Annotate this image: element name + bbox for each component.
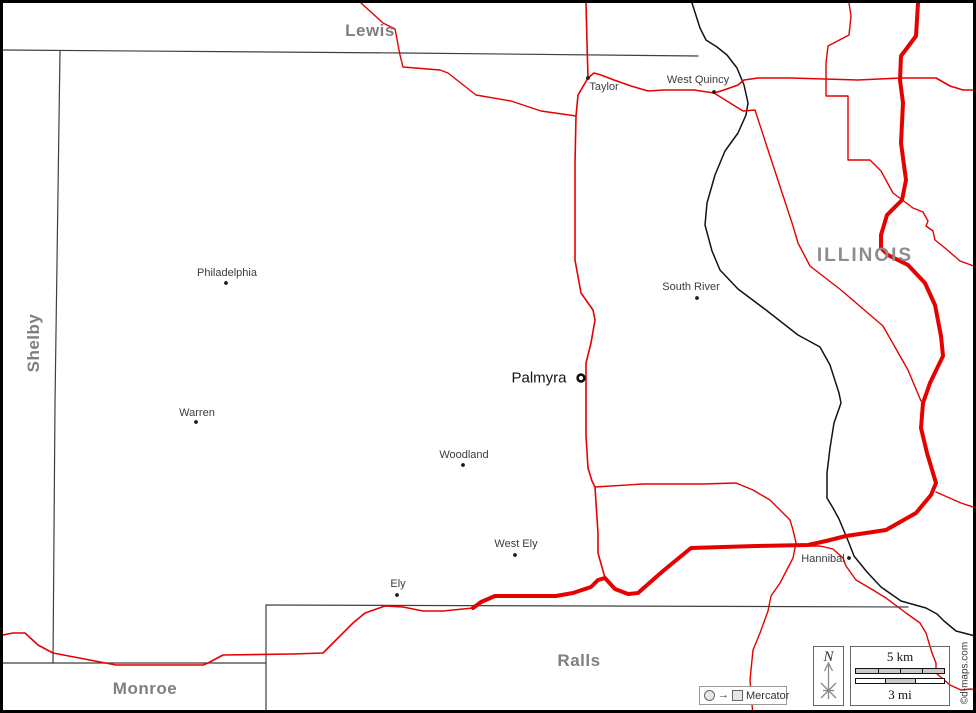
- road-palmyra-east-loop: [595, 483, 796, 710]
- projection-name: Mercator: [746, 690, 789, 702]
- scale-km-bar: [855, 668, 945, 674]
- ralls-marion-line: [266, 605, 908, 607]
- town-dot: [513, 553, 517, 557]
- arrow-right-icon: →: [718, 690, 729, 701]
- road-west-along-ralls: [3, 606, 473, 665]
- road-east-short: [936, 492, 973, 509]
- road-northwest: [361, 3, 576, 116]
- road-taylor-west-quincy-east: [588, 73, 973, 93]
- town-dot: [224, 281, 228, 285]
- shelby-marion-line: [53, 51, 60, 663]
- scale-bar-box: 5 km 3 mi: [850, 646, 950, 706]
- north-label: N: [814, 649, 843, 666]
- mississippi-river-state-line: [692, 3, 973, 637]
- road-taylor-palmyra: [575, 3, 605, 578]
- projection-legend: → Mercator: [699, 686, 787, 705]
- town-dot: [461, 463, 465, 467]
- town-dot: [712, 90, 716, 94]
- projected-square-icon: [732, 690, 743, 701]
- county-seat-marker: [578, 375, 585, 382]
- town-dot: [586, 76, 590, 80]
- globe-circle-icon: [704, 690, 715, 701]
- scale-km-label: 5 km: [851, 649, 949, 665]
- highway-thick: [473, 3, 943, 608]
- town-dot: [847, 556, 851, 560]
- map-lines-layer: [3, 3, 973, 710]
- copyright-text: ©d-maps.com: [960, 642, 971, 704]
- scale-mi-bar: [855, 678, 945, 684]
- town-dot: [695, 296, 699, 300]
- scale-mi-label: 3 mi: [851, 687, 949, 703]
- road-illinois-diagonal: [714, 93, 921, 401]
- town-dot: [194, 420, 198, 424]
- lewis-marion-line: [3, 50, 698, 56]
- north-arrow-box: N: [813, 646, 844, 706]
- map-canvas: LewisShelbyMonroeRallsILLINOISTaylorWest…: [0, 0, 976, 713]
- town-dot: [395, 593, 399, 597]
